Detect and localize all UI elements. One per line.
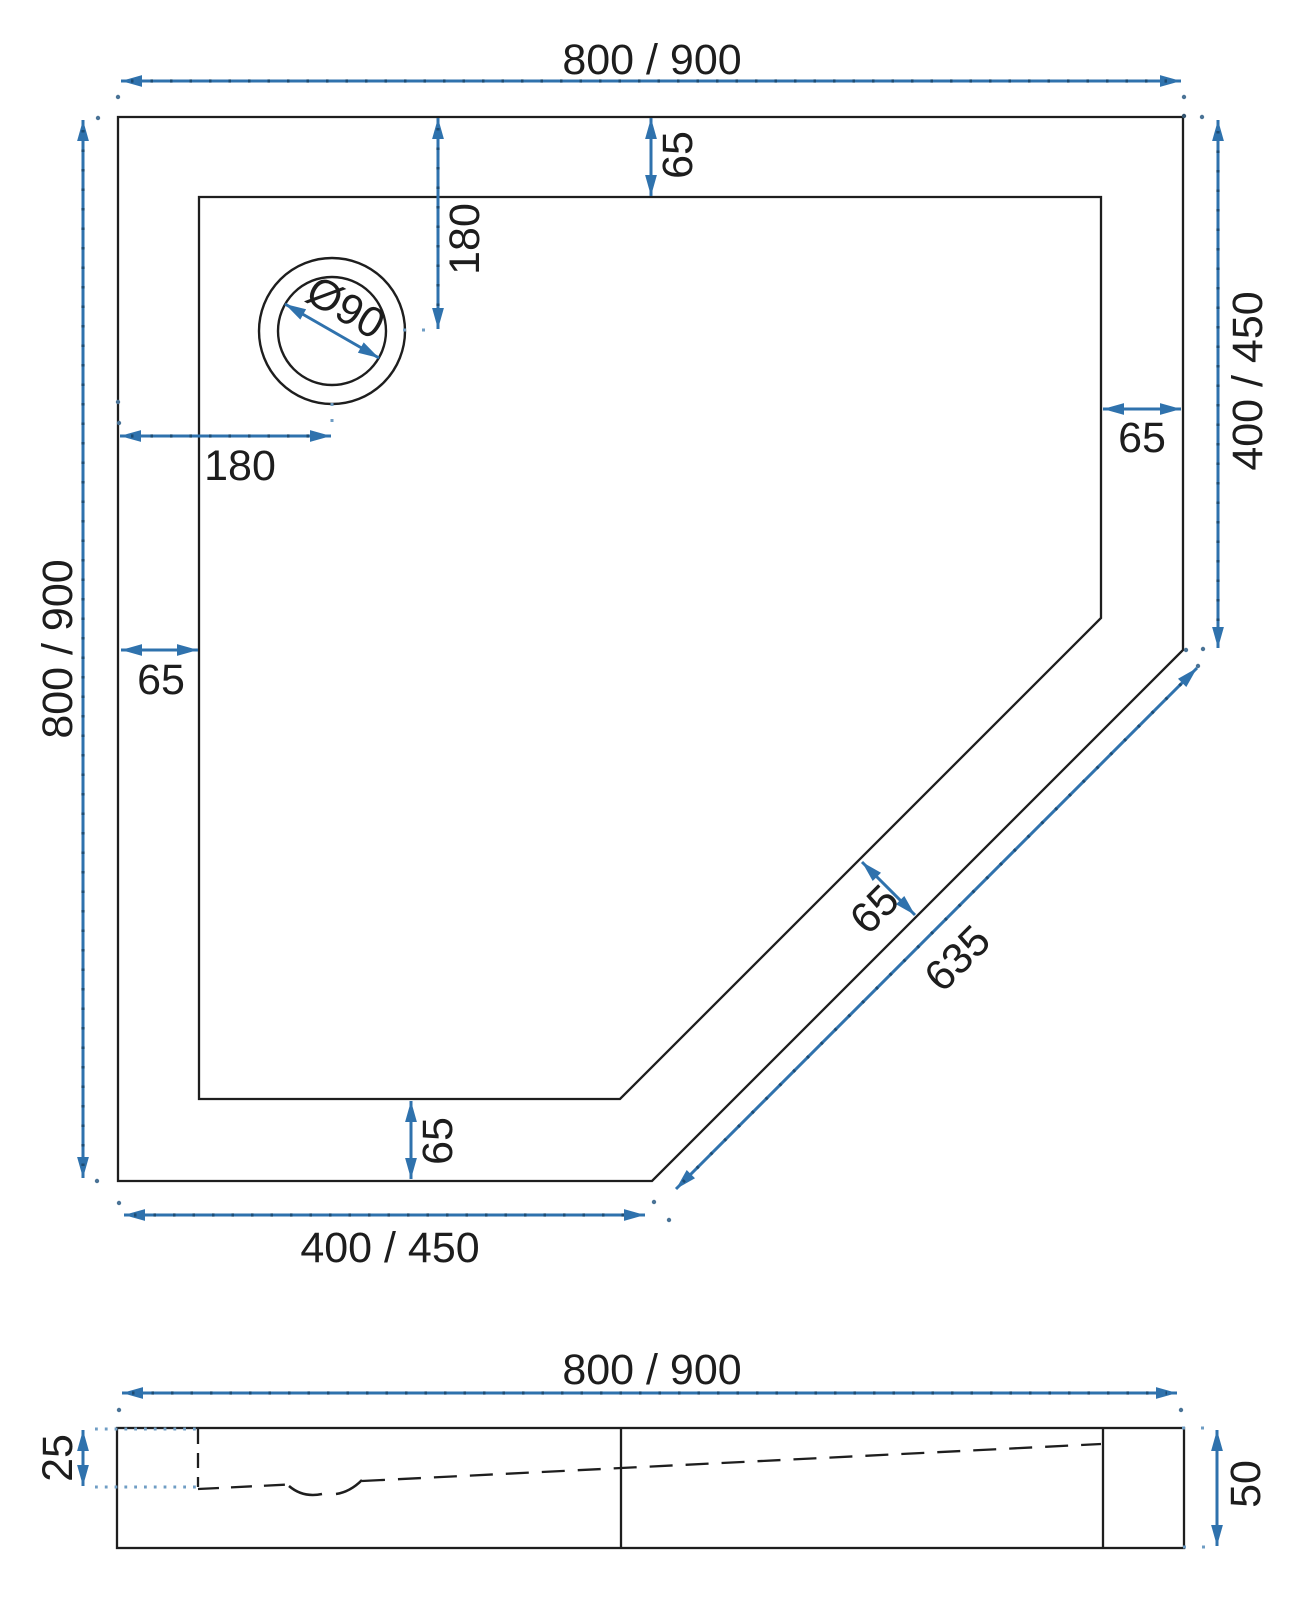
svg-text:65: 65 [1118,414,1166,462]
svg-text:25: 25 [34,1434,82,1482]
svg-text:50: 50 [1222,1460,1270,1508]
svg-text:800 / 900: 800 / 900 [562,1346,741,1394]
svg-text:65: 65 [654,131,702,179]
svg-text:65: 65 [414,1117,462,1165]
svg-text:800 / 900: 800 / 900 [562,36,741,84]
svg-text:800 / 900: 800 / 900 [34,559,82,738]
svg-text:180: 180 [204,442,276,490]
svg-text:400 / 450: 400 / 450 [1224,291,1272,470]
svg-text:400 / 450: 400 / 450 [300,1224,479,1272]
svg-text:65: 65 [137,656,185,704]
svg-text:180: 180 [441,203,489,275]
